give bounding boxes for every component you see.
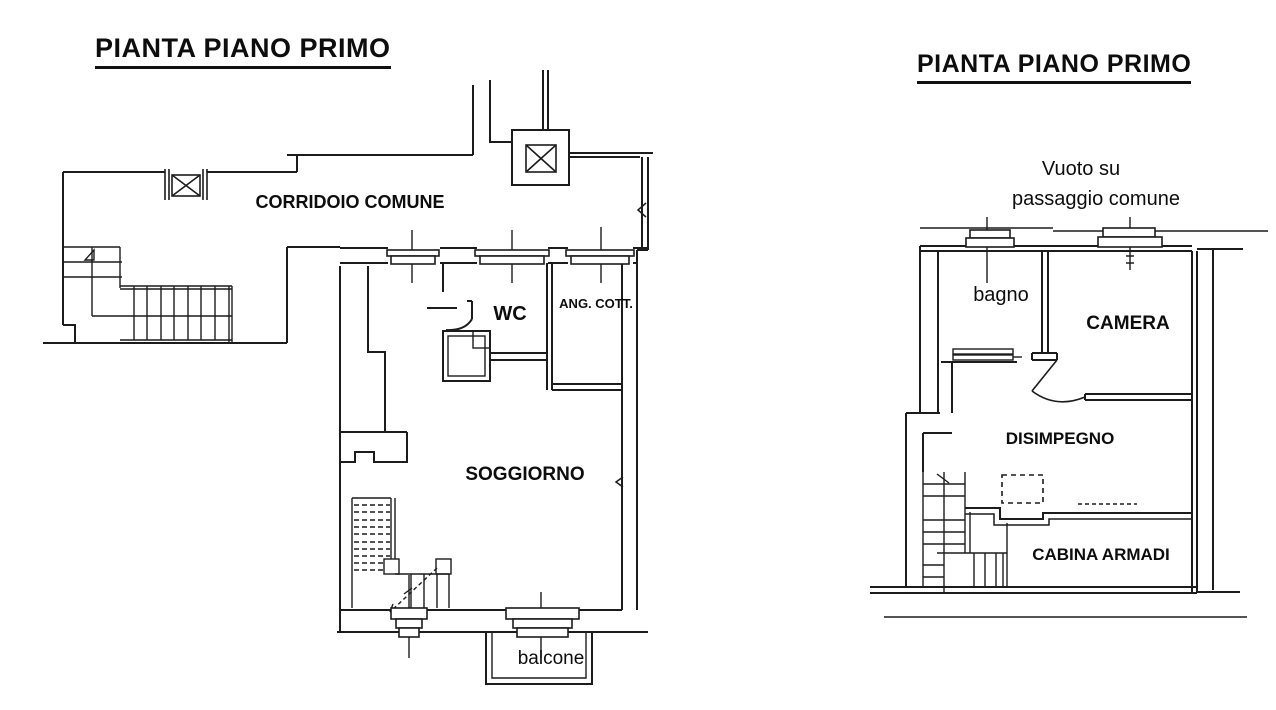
camera-walls [1085, 394, 1192, 400]
window-icons-top [387, 227, 634, 283]
door-arc-icon [446, 319, 472, 330]
floorplan-image: PIANTA PIANO PRIMO PIANTA PIANO PRIMO CO… [0, 0, 1276, 710]
wc-walls [427, 263, 622, 390]
label-balcone: balcone [518, 648, 585, 670]
window-shaft-icon [165, 169, 207, 200]
floorplan-linework [0, 0, 1276, 710]
stair-icon-right [923, 472, 1007, 592]
label-corridoio-comune: CORRIDOIO COMUNE [256, 192, 445, 213]
elevator-icon [512, 70, 569, 185]
label-cabina-armadi: CABINA ARMADI [1032, 545, 1170, 565]
left-plan-title: PIANTA PIANO PRIMO [95, 33, 391, 69]
label-wc: WC [493, 303, 526, 326]
label-vuoto-line1: Vuoto su [1042, 158, 1120, 181]
right-plan-title: PIANTA PIANO PRIMO [917, 50, 1191, 84]
stair-arrow-icon-right [937, 474, 949, 483]
shelf-icon [953, 349, 1022, 360]
label-soggiorno: SOGGIORNO [465, 464, 584, 486]
left-plan-drawing [43, 70, 653, 684]
label-disimpegno: DISIMPEGNO [1006, 429, 1115, 449]
common-stair-icon [63, 247, 232, 343]
label-bagno: bagno [973, 284, 1029, 307]
label-ang-cott: ANG. COTT. [559, 296, 633, 311]
label-camera: CAMERA [1086, 313, 1169, 335]
cabina-walls [965, 504, 1192, 525]
void-dashed-square [1002, 475, 1043, 503]
door-arc-icon-right [1032, 360, 1085, 402]
label-vuoto-line2: passaggio comune [1012, 188, 1180, 211]
interior-stair-icon [352, 498, 451, 612]
